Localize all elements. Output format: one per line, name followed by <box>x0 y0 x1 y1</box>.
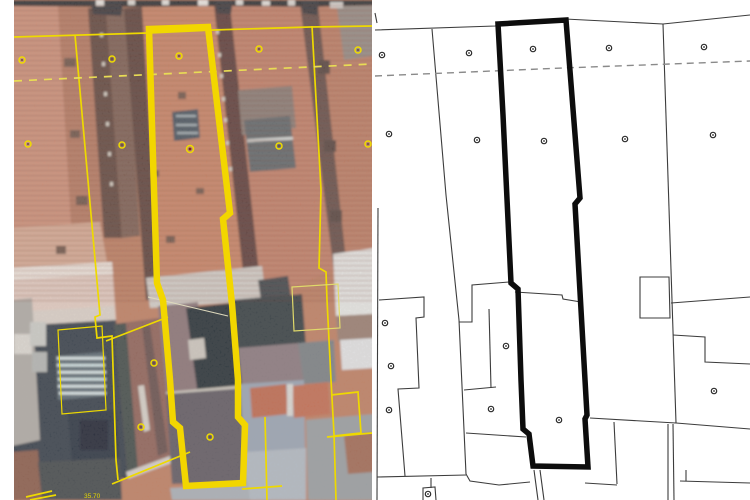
svg-text:35.70: 35.70 <box>84 493 101 500</box>
